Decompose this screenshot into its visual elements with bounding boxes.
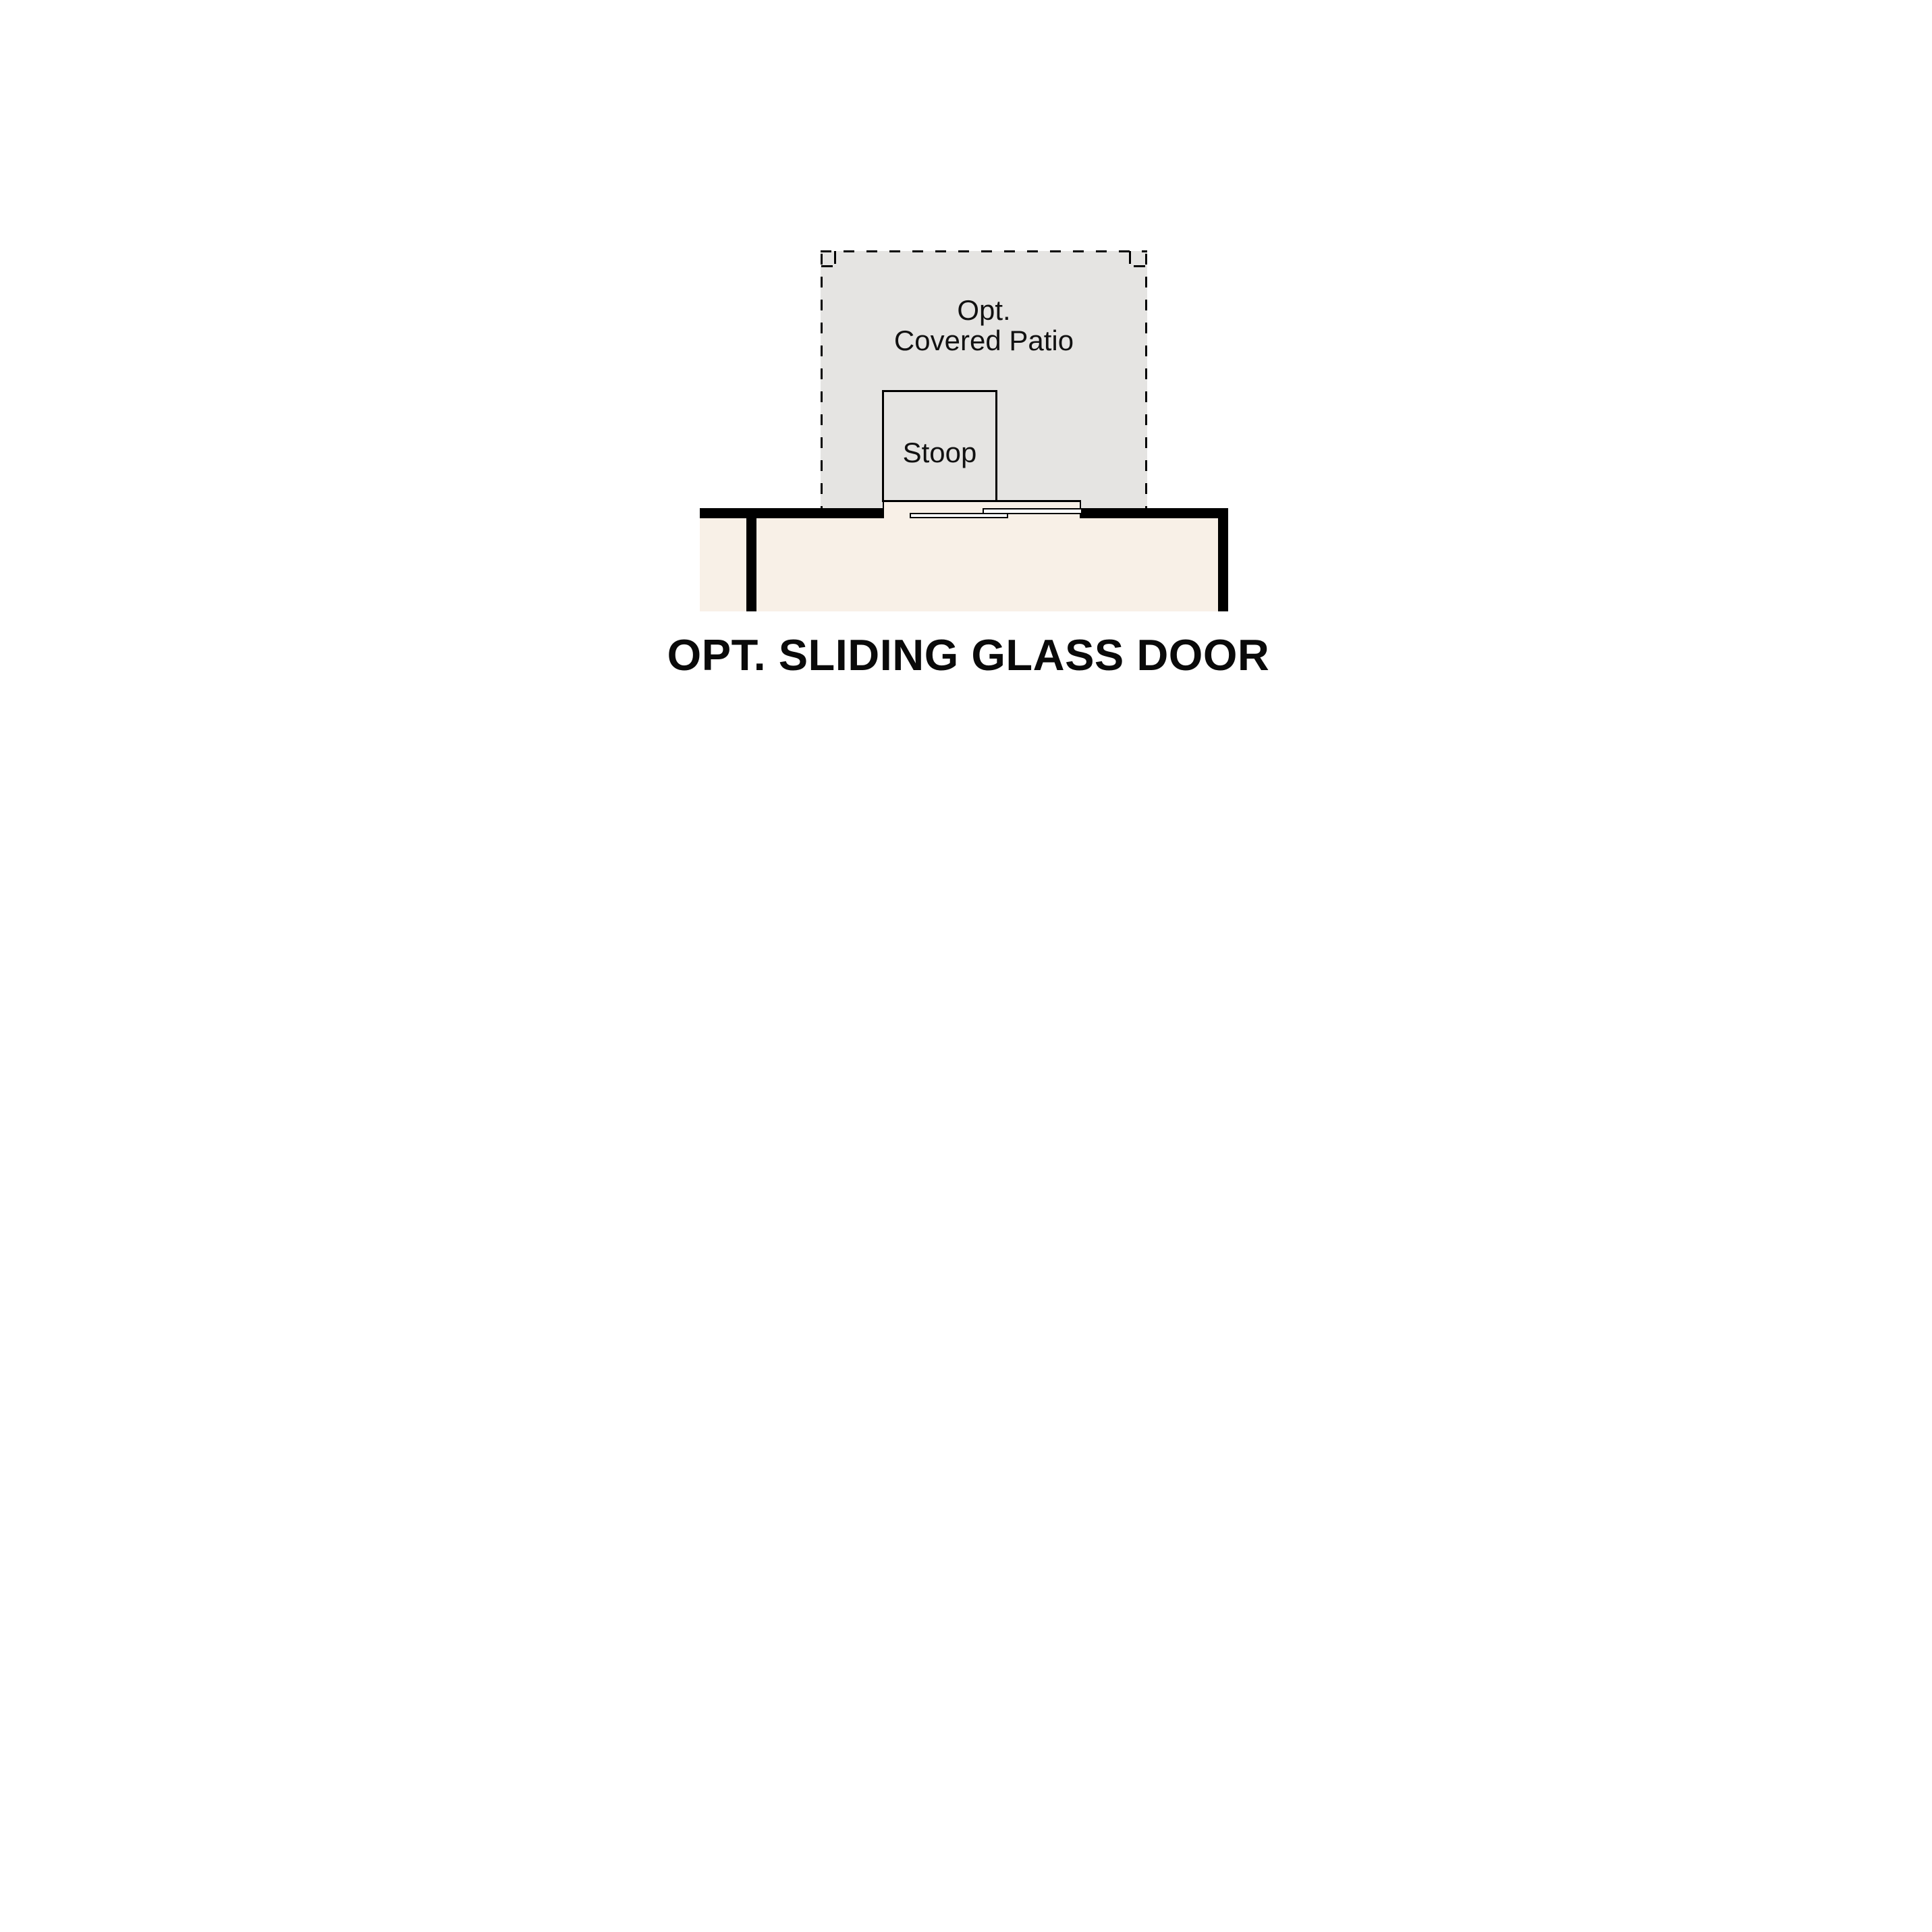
patio-dashed-border-left [821,254,823,508]
interior-partition-wall [746,518,756,611]
exterior-wall-right-return [1218,508,1228,611]
diagram-title: OPT. SLIDING GLASS DOOR [631,633,1306,677]
exterior-wall-left-segment [700,508,883,518]
interior-room-floor [700,518,1218,611]
patio-dashed-border-right [1145,254,1147,508]
patio-corner-mark-top-left-vertical [834,251,836,264]
patio-corner-mark-top-right-vertical [1129,251,1131,264]
exterior-wall-right-segment [1081,508,1228,518]
stoop-label: Stoop [882,437,997,468]
patio-label: Opt. Covered Patio [821,295,1147,356]
patio-label-line2: Covered Patio [821,325,1147,356]
patio-corner-mark-top-left-horizontal [821,265,833,267]
sliding-door-sliding-panel [910,513,1008,518]
patio-label-line1: Opt. [821,295,1147,325]
patio-corner-mark-top-right-horizontal [1134,265,1145,267]
floorplan-canvas: Opt. Covered Patio Stoop OPT. SLIDING GL… [0,0,1932,1932]
patio-dashed-border-top [821,250,1147,252]
